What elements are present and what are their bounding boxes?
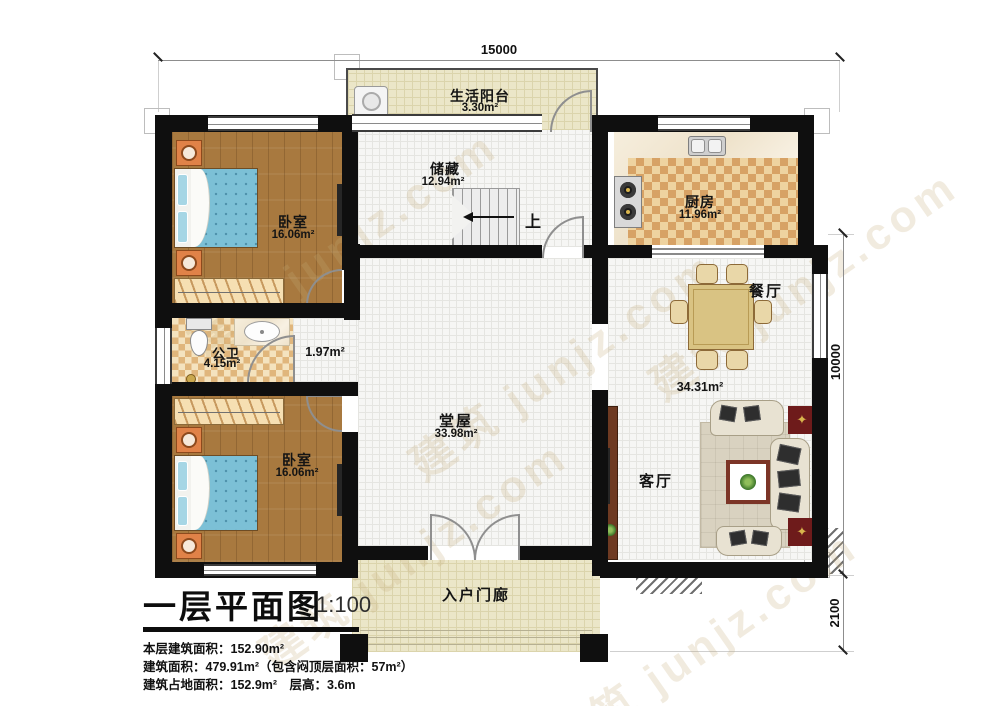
plan-scale: 1:100 — [316, 592, 371, 618]
stairs-up-label: 上 — [522, 208, 544, 232]
bathroom-area: 4.15m² — [186, 358, 258, 370]
dimension-label-right-lower: 2100 — [827, 588, 843, 638]
kitchen-area: 11.96m² — [660, 209, 740, 221]
extension-line — [839, 60, 840, 112]
dining-chair — [670, 300, 688, 324]
dimension-label-top: 15000 — [459, 42, 539, 58]
double-bed — [174, 168, 258, 248]
sink-drain-dot — [260, 330, 264, 334]
info-line-1: 本层建筑面积：152.90m² — [143, 638, 284, 657]
pillow — [177, 211, 188, 243]
wardrobe — [174, 398, 284, 425]
sofa-cushion — [743, 405, 761, 422]
wall-hall-bottom-b — [520, 546, 592, 560]
plant-icon — [740, 474, 756, 490]
living-dining-area: 34.31m² — [664, 380, 736, 394]
nightstand — [176, 140, 202, 166]
kitchen-opening-line — [652, 248, 764, 250]
info-line-2: 建筑面积：479.91m²（包含闷顶层面积：57m²） — [143, 656, 413, 675]
window-dining-right — [812, 274, 828, 358]
burner-center — [626, 188, 630, 192]
wall-hall-dining-upper — [592, 258, 608, 324]
wall-bottom-right — [600, 562, 828, 578]
dimension-line-right — [843, 235, 844, 652]
wall-hall-living-lower — [592, 390, 608, 576]
porch-step-line — [360, 637, 592, 638]
window-bathroom-left — [155, 328, 172, 384]
exterior-steps-hatch — [636, 578, 702, 594]
balcony-area: 3.30m² — [440, 102, 520, 114]
wall-bathroom-bottom — [155, 382, 358, 396]
info-line-3: 建筑占地面积：152.9m² 层高：3.6m — [143, 674, 356, 693]
wall-kitchen-bottom-b — [764, 245, 828, 258]
bathroom-door-leaf — [293, 335, 295, 383]
kitchen-opening-line — [652, 253, 764, 255]
dimension-label-right: 10000 — [828, 332, 844, 392]
balcony-sill-window — [352, 114, 542, 132]
sofa-cushion — [719, 405, 737, 423]
title-underline — [143, 627, 359, 632]
pillow — [177, 496, 188, 526]
floor-plan-canvas: 建筑 junjz.com 建筑 junjz.com 建筑 junjz.com 建… — [0, 0, 1000, 706]
bedroom-top-area: 16.06m² — [253, 229, 333, 241]
dining-chair — [696, 350, 718, 370]
nightstand — [176, 533, 202, 559]
porch-step-line — [360, 644, 592, 645]
armchair — [716, 526, 782, 556]
wall-storage-bottom-a — [358, 245, 542, 258]
wall-storage-kitchen — [592, 115, 608, 258]
wall-bedroom-top-bottom — [155, 303, 358, 318]
washing-machine-drum — [362, 92, 381, 111]
wall-hall-bottom-a — [352, 546, 428, 560]
window-bedroom-bottom — [204, 564, 316, 576]
sofa-cushion — [777, 469, 801, 488]
dimension-line-top — [158, 60, 840, 61]
entry-door-left-leaf — [430, 514, 432, 560]
dining-chair — [696, 264, 718, 284]
window-kitchen-top — [658, 116, 750, 131]
corridor-area: 1.97m² — [289, 345, 361, 359]
sofa-cushion — [729, 530, 747, 547]
dining-chair — [726, 350, 748, 370]
porch-label: 入户门廊 — [426, 584, 526, 605]
window-bedroom-top — [208, 116, 318, 131]
pillow — [177, 174, 188, 206]
sofa-cushion — [777, 493, 801, 513]
sink-basin — [691, 139, 705, 153]
sink-basin — [708, 139, 722, 153]
staircase-arrow-head — [463, 212, 473, 222]
nightstand — [176, 250, 202, 276]
toilet-tank — [186, 318, 212, 330]
nightstand — [176, 427, 202, 453]
double-bed — [174, 455, 258, 531]
plan-title: 一层平面图 — [143, 580, 323, 628]
wall-kitchen-right — [798, 115, 814, 258]
storage-area: 12.94m² — [403, 176, 483, 188]
staircase-arrow-line — [472, 216, 514, 218]
wardrobe — [174, 278, 284, 305]
dining-label: 餐厅 — [736, 280, 796, 301]
pillow — [177, 461, 188, 491]
porch-pillar-right — [580, 634, 608, 662]
wall-kitchen-bottom-a — [608, 245, 652, 258]
sofa-cushion — [751, 530, 769, 546]
wall-storage-bottom-b — [584, 245, 592, 258]
extension-line — [158, 60, 159, 112]
hall-area: 33.98m² — [418, 428, 494, 440]
porch-step-line — [360, 630, 592, 631]
dining-chair — [754, 300, 772, 324]
living-label: 客厅 — [626, 470, 686, 491]
bedroom-bottom-area: 16.06m² — [257, 467, 337, 479]
burner-center — [626, 210, 630, 214]
